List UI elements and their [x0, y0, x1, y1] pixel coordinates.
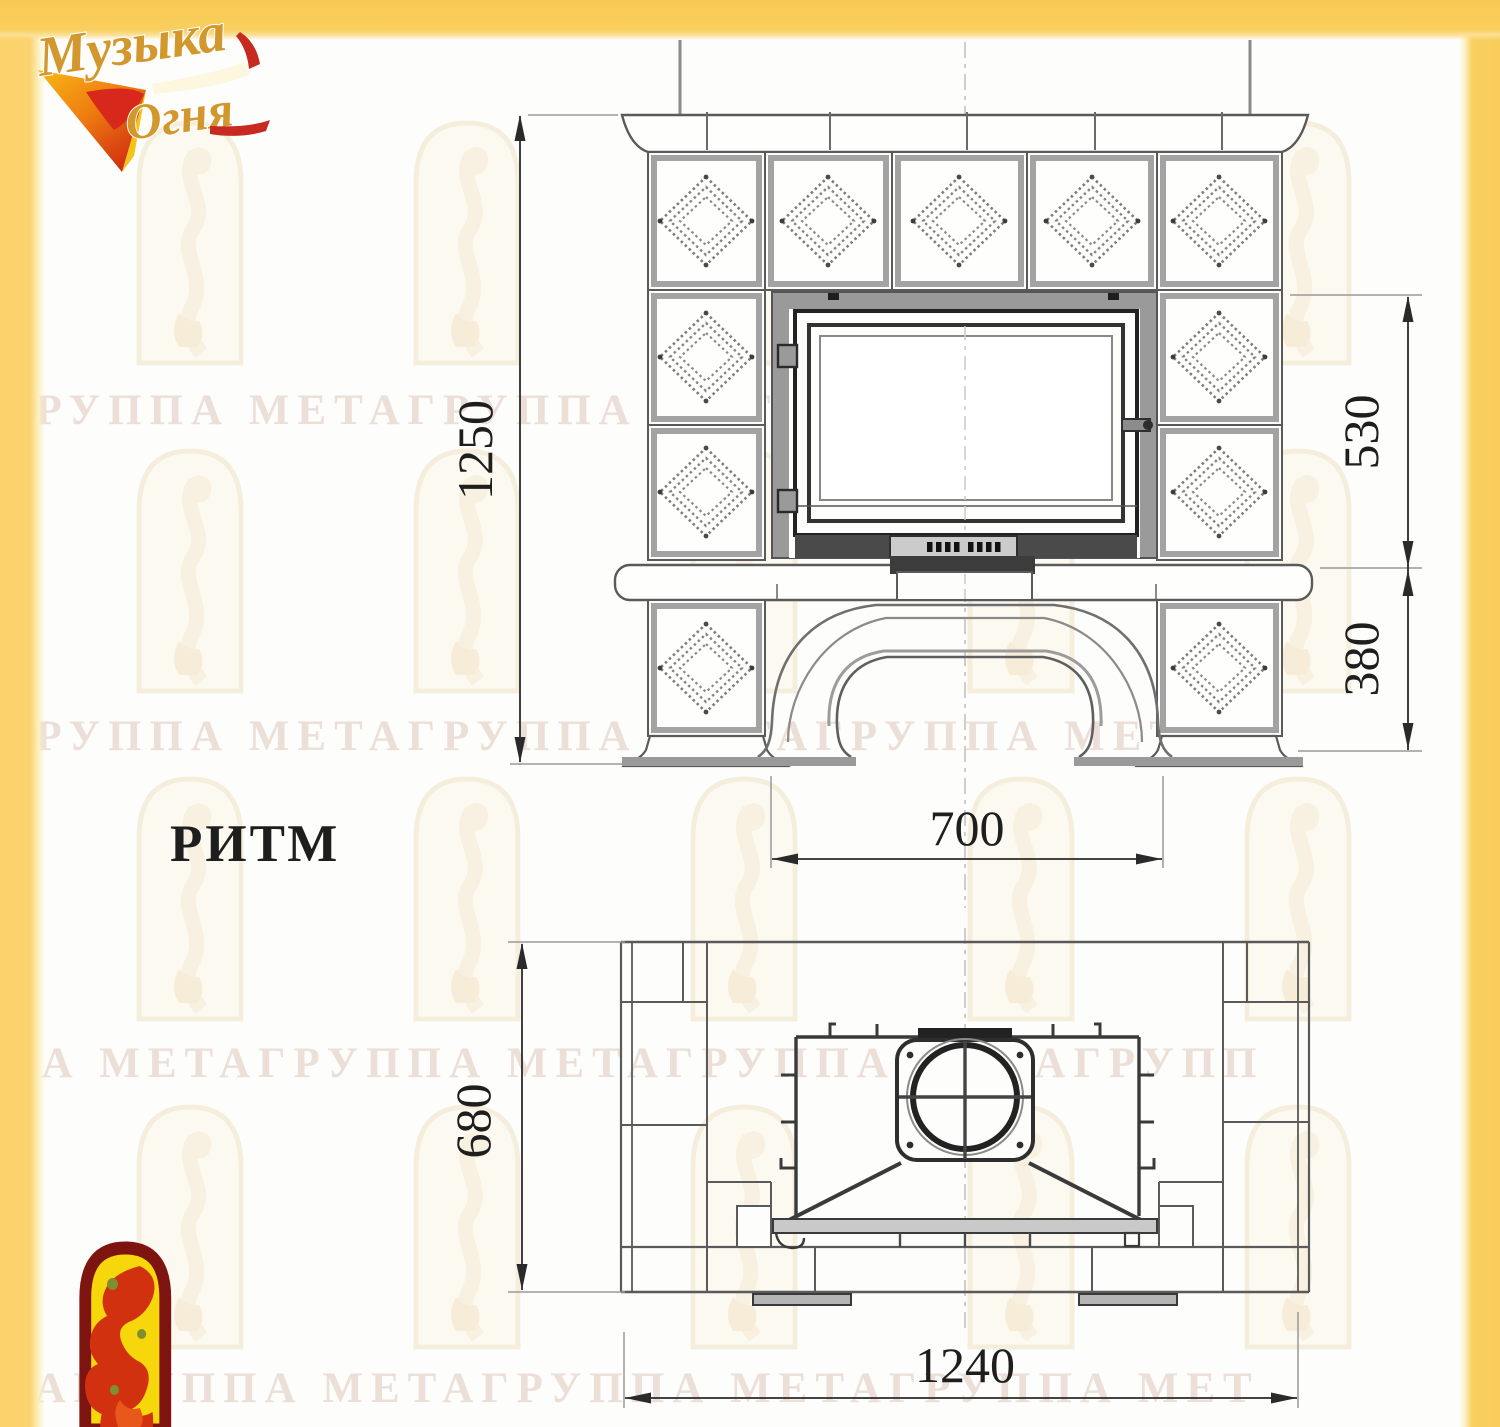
svg-text:380: 380	[1333, 622, 1389, 697]
svg-text:1240: 1240	[915, 1337, 1015, 1393]
svg-text:700: 700	[930, 800, 1005, 856]
svg-text:РИТМ: РИТМ	[170, 815, 340, 873]
svg-text:1250: 1250	[447, 400, 503, 500]
svg-text:680: 680	[445, 1084, 501, 1159]
svg-text:530: 530	[1333, 395, 1389, 470]
